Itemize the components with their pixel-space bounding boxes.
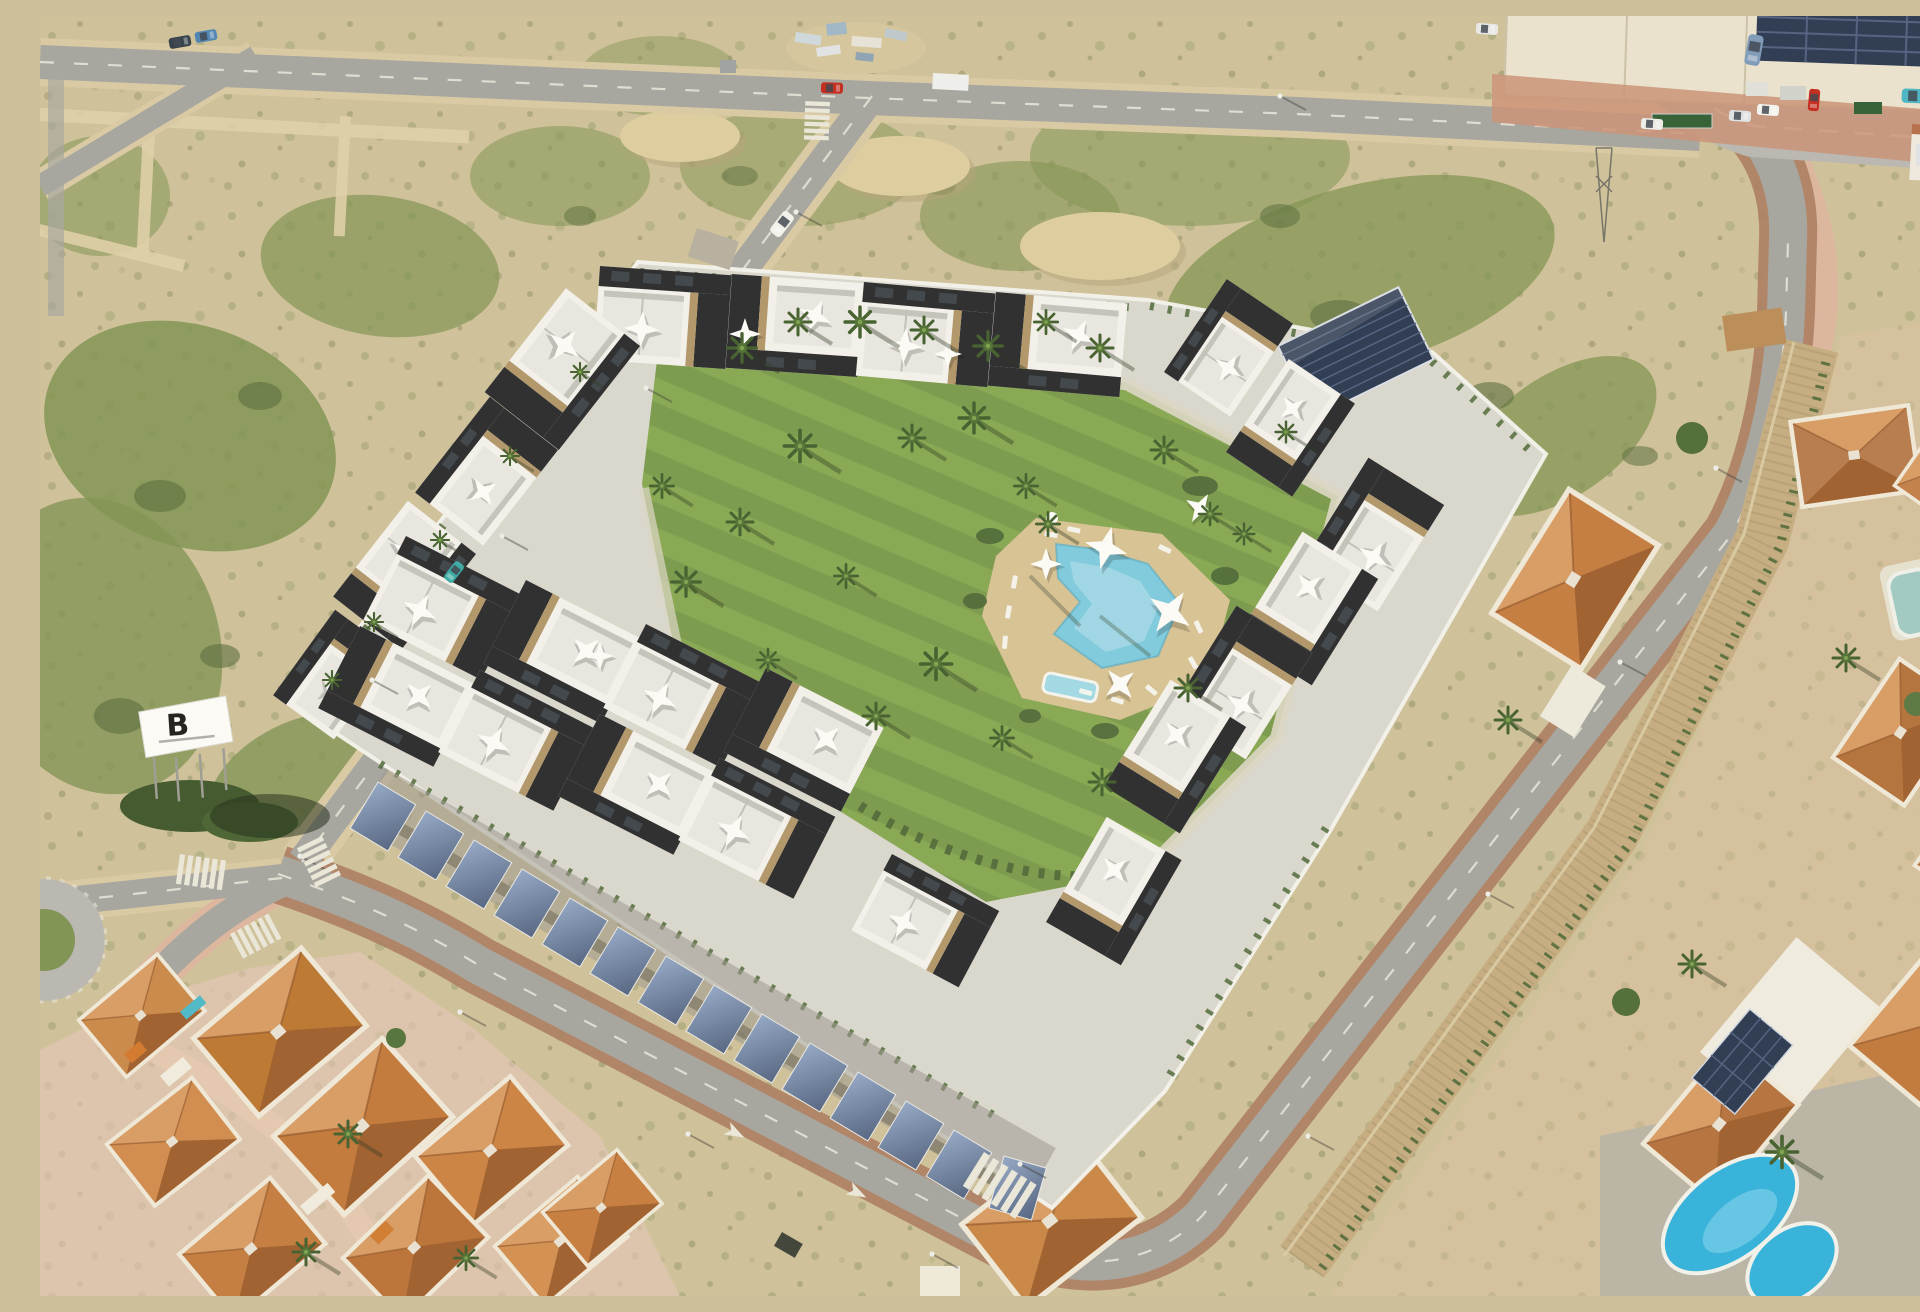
aerial-photo: B bbox=[40, 16, 1920, 1296]
sunlight-tint bbox=[40, 16, 1920, 1296]
